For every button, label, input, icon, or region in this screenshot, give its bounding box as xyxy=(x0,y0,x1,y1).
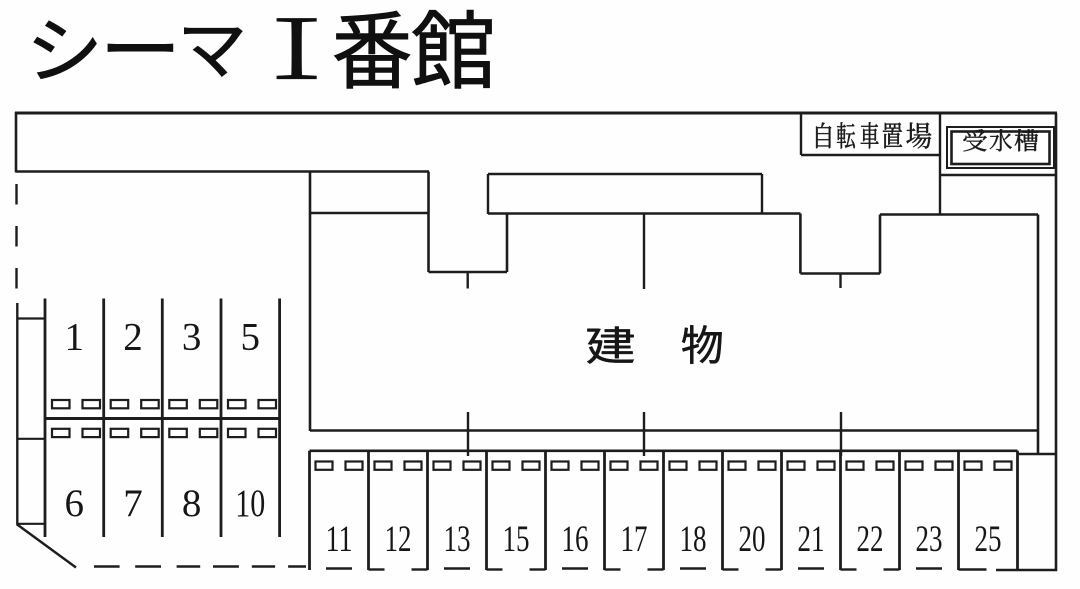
svg-text:11: 11 xyxy=(326,519,353,560)
svg-text:1: 1 xyxy=(65,316,85,359)
svg-text:18: 18 xyxy=(680,519,707,560)
svg-text:3: 3 xyxy=(182,316,202,359)
svg-text:10: 10 xyxy=(235,482,265,525)
svg-text:22: 22 xyxy=(857,519,884,560)
svg-text:25: 25 xyxy=(975,519,1002,560)
svg-text:8: 8 xyxy=(182,482,202,525)
svg-text:13: 13 xyxy=(444,519,471,560)
svg-text:6: 6 xyxy=(65,482,85,525)
svg-text:5: 5 xyxy=(241,316,261,359)
svg-text:16: 16 xyxy=(562,519,589,560)
svg-text:17: 17 xyxy=(621,519,648,560)
svg-text:15: 15 xyxy=(503,519,530,560)
svg-text:21: 21 xyxy=(798,519,825,560)
svg-text:7: 7 xyxy=(123,482,143,525)
svg-text:12: 12 xyxy=(385,519,412,560)
svg-text:2: 2 xyxy=(123,316,143,359)
svg-text:20: 20 xyxy=(739,519,766,560)
svg-text:23: 23 xyxy=(916,519,943,560)
